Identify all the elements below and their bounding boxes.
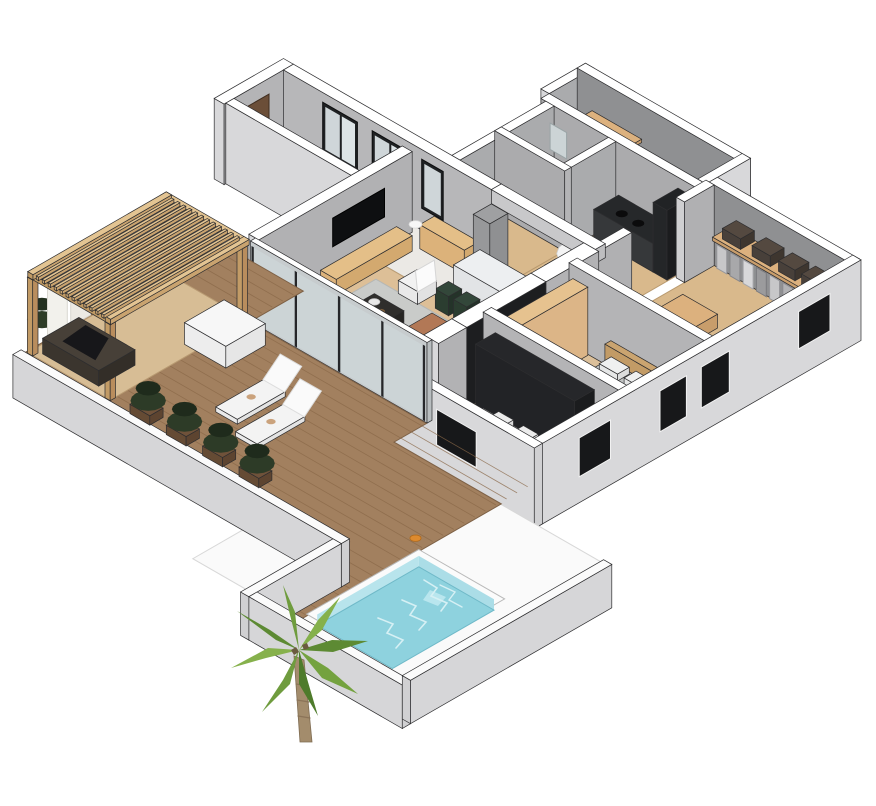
office-sw-facade-side-se: [534, 443, 542, 528]
cooktop-burner-2: [632, 220, 644, 227]
pergola-post-3-side-sw: [27, 277, 32, 356]
window-glass-1a: [325, 107, 340, 158]
hanging-clothes-4: [756, 268, 766, 297]
lounger-2-towel: [266, 419, 275, 424]
bush-4-top: [245, 444, 270, 459]
oven-tower-side-sw: [653, 202, 667, 280]
glass-door-mullion-3: [338, 296, 340, 373]
glass-door-mullion-5: [423, 345, 425, 422]
closet-nw-wall-a-side-sw: [676, 197, 684, 282]
window-glass-1b: [342, 116, 355, 166]
glass-door-mullion-2: [295, 271, 297, 348]
bush-1-top: [136, 381, 161, 396]
bush-2-top: [172, 402, 197, 417]
ball-lamp: [409, 221, 422, 229]
cooktop-burner-1: [616, 210, 628, 217]
terrace-edge-wall-sw-side-se: [341, 539, 349, 587]
glass-door-frame-side-se: [427, 340, 432, 423]
floorplan-3d-render[interactable]: [0, 0, 876, 806]
entry-end-wall-side-sw: [214, 98, 224, 184]
pergola-post-3-side-se: [33, 277, 38, 356]
terrace-edge-wall-se-side-sw: [402, 676, 410, 724]
bush-3-top: [208, 423, 233, 438]
lounger-1-towel: [247, 394, 256, 399]
hanging-clothes-3: [743, 260, 753, 289]
hanging-clothes-1: [717, 245, 727, 274]
hanging-clothes-2: [730, 252, 740, 281]
glass-door-mullion-4: [381, 321, 383, 398]
render-viewport[interactable]: [0, 0, 876, 806]
orange-ball: [410, 535, 421, 541]
